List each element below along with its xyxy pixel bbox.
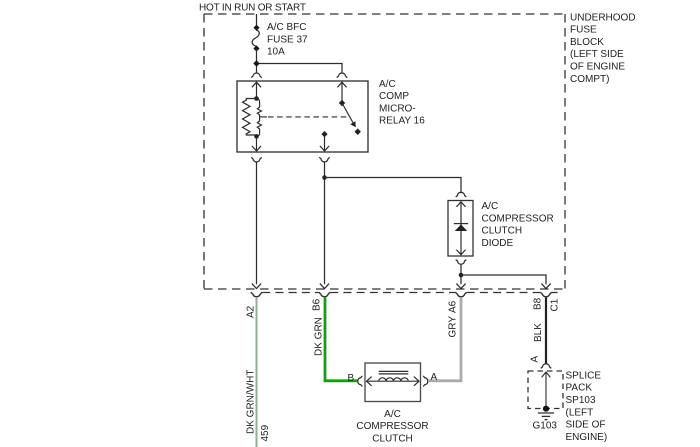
svg-text:C1: C1 <box>550 298 561 311</box>
svg-text:A/C: A/C <box>482 201 499 212</box>
svg-text:COMPRESSOR: COMPRESSOR <box>356 421 428 432</box>
svg-text:SPLICE: SPLICE <box>566 370 602 381</box>
svg-text:GRY: GRY <box>448 316 459 338</box>
svg-text:SP103: SP103 <box>566 395 596 406</box>
svg-text:(LEFT: (LEFT <box>566 407 594 418</box>
svg-text:A/C BFC: A/C BFC <box>267 22 306 33</box>
svg-text:B8: B8 <box>533 297 544 310</box>
svg-text:MICRO-: MICRO- <box>379 103 416 114</box>
svg-text:COMP: COMP <box>379 91 409 102</box>
svg-text:459: 459 <box>260 424 271 441</box>
svg-text:A: A <box>530 356 541 363</box>
svg-text:ENGINE): ENGINE) <box>566 432 608 443</box>
svg-text:G103: G103 <box>533 421 558 432</box>
svg-text:HOT IN RUN OR START: HOT IN RUN OR START <box>199 3 306 14</box>
svg-text:DK GRN/WHT: DK GRN/WHT <box>246 370 257 434</box>
svg-text:OF ENGINE: OF ENGINE <box>570 62 625 73</box>
svg-text:CLUTCH: CLUTCH <box>482 226 523 237</box>
svg-text:A6: A6 <box>448 300 459 313</box>
svg-text:FUSE: FUSE <box>570 25 597 36</box>
svg-text:PACK: PACK <box>566 383 593 394</box>
svg-text:B: B <box>348 373 355 384</box>
svg-text:FUSE 37: FUSE 37 <box>267 34 308 45</box>
svg-text:A/C: A/C <box>384 409 401 420</box>
svg-text:DIODE: DIODE <box>482 238 514 249</box>
svg-text:BLK: BLK <box>533 323 544 342</box>
svg-text:COMPRESSOR: COMPRESSOR <box>482 213 554 224</box>
svg-text:BLOCK: BLOCK <box>570 37 604 48</box>
svg-text:RELAY 16: RELAY 16 <box>379 116 425 127</box>
svg-text:B6: B6 <box>312 298 323 311</box>
svg-text:DK GRN: DK GRN <box>314 317 325 356</box>
svg-text:(LEFT SIDE: (LEFT SIDE <box>570 49 624 60</box>
svg-text:CLUTCH: CLUTCH <box>372 433 413 444</box>
svg-text:A2: A2 <box>246 305 257 318</box>
svg-text:A: A <box>431 372 438 383</box>
svg-text:COMPT): COMPT) <box>570 74 609 85</box>
svg-text:SIDE OF: SIDE OF <box>566 420 606 431</box>
svg-text:A/C: A/C <box>379 79 396 90</box>
svg-text:UNDERHOOD: UNDERHOOD <box>570 12 636 23</box>
svg-text:10A: 10A <box>267 47 285 58</box>
